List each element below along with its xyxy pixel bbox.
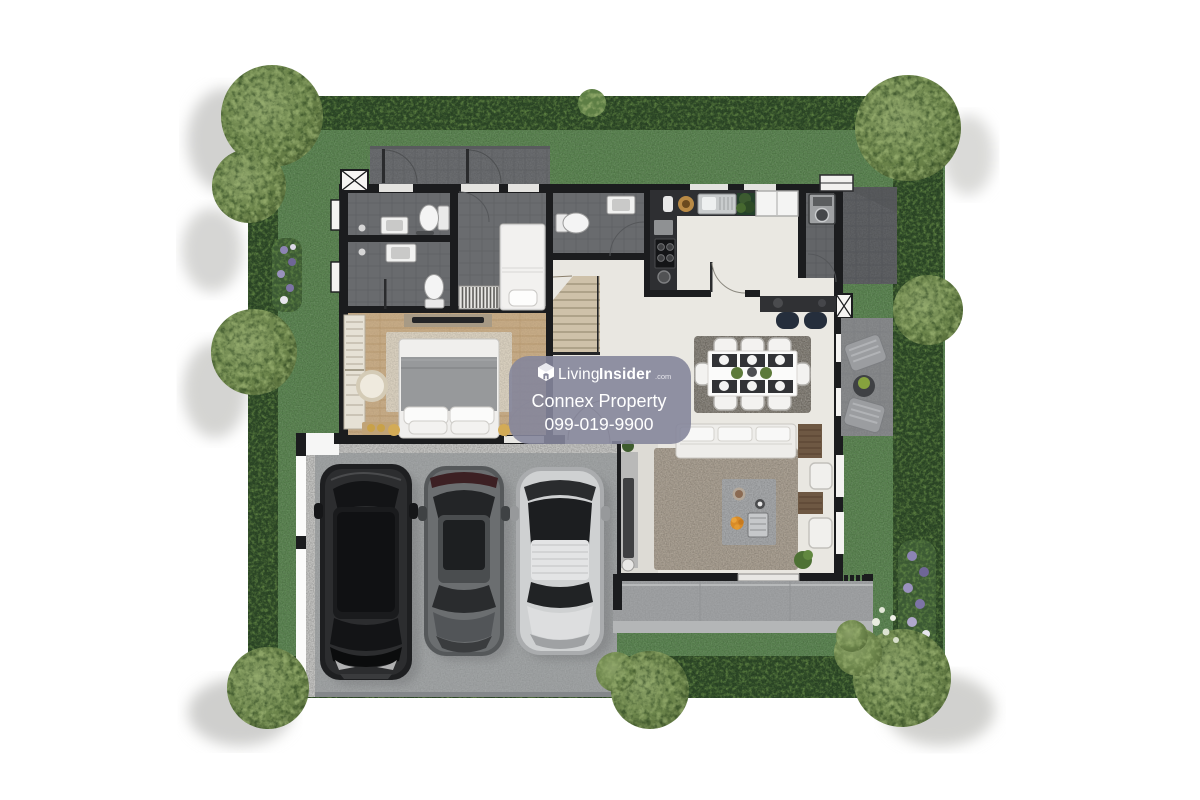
svg-text:099-019-9900: 099-019-9900	[545, 414, 654, 434]
svg-text:Insider: Insider	[599, 366, 651, 383]
svg-text:Connex Property: Connex Property	[531, 391, 666, 411]
svg-text:Living: Living	[558, 366, 600, 383]
svg-text:.com: .com	[655, 372, 671, 381]
